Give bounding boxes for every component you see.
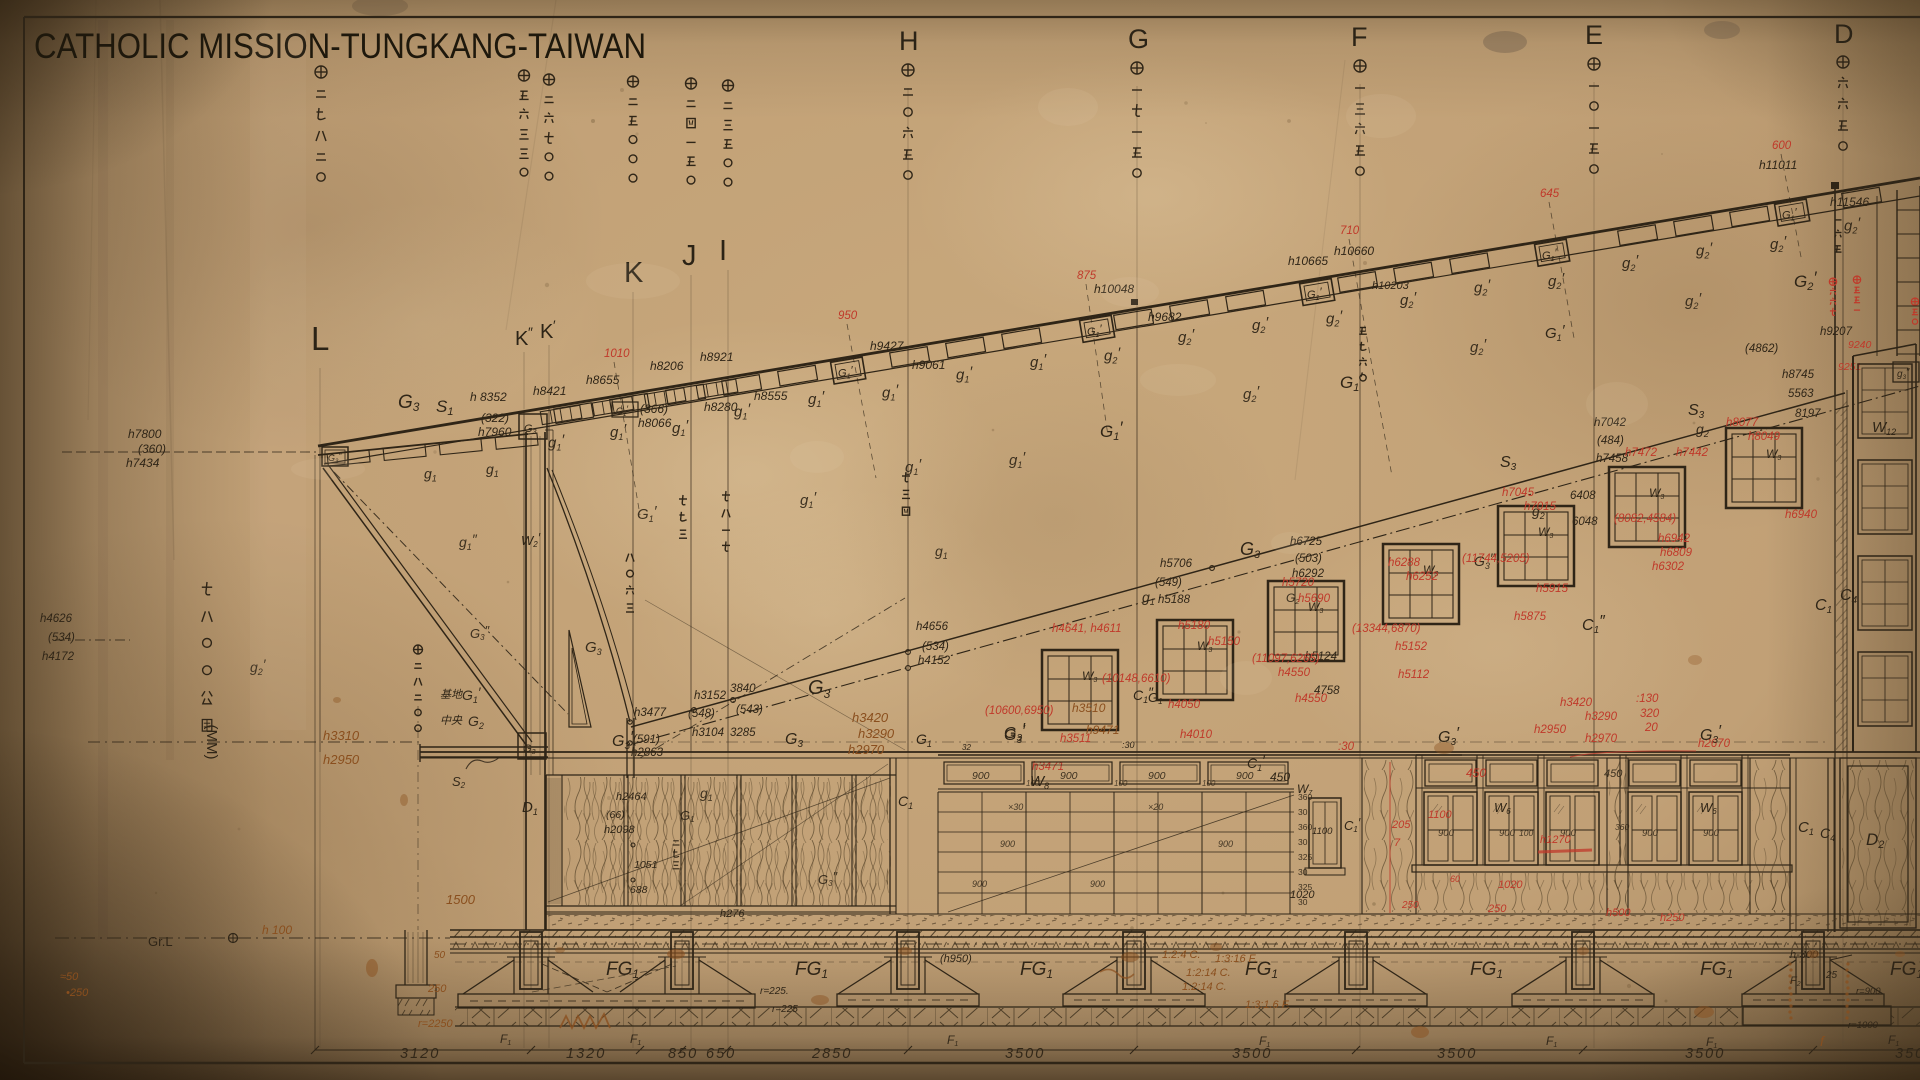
svg-text:(484): (484) <box>1597 435 1624 447</box>
svg-text:900: 900 <box>1499 828 1516 839</box>
svg-text:30: 30 <box>1298 807 1308 817</box>
svg-text:900: 900 <box>1060 770 1078 782</box>
svg-text:h6940: h6940 <box>1785 509 1818 521</box>
svg-text:h8206: h8206 <box>650 359 684 373</box>
svg-text:600: 600 <box>1772 140 1792 152</box>
svg-text:FG1: FG1 <box>1890 959 1920 981</box>
svg-text:h500: h500 <box>1606 907 1631 919</box>
svg-text:g2′: g2′ <box>1685 290 1702 311</box>
svg-text:h4172: h4172 <box>42 651 75 663</box>
svg-text:C4: C4 <box>1820 825 1835 843</box>
svg-text:3840: 3840 <box>730 683 756 695</box>
svg-text:G1′: G1′ <box>1307 286 1322 302</box>
svg-text:h5720: h5720 <box>1282 577 1315 589</box>
svg-text:h11546: h11546 <box>1830 195 1869 209</box>
svg-text:h5915: h5915 <box>1536 583 1569 595</box>
svg-text:G1′: G1′ <box>1545 322 1566 343</box>
svg-text:h4626: h4626 <box>40 613 73 625</box>
svg-text:(591): (591) <box>633 734 660 746</box>
svg-text:h6809: h6809 <box>1660 547 1693 559</box>
svg-text:(503): (503) <box>1295 553 1322 565</box>
svg-text:G1′: G1′ <box>1542 247 1557 263</box>
svg-text:h3477: h3477 <box>634 707 667 719</box>
svg-text:(534): (534) <box>922 641 949 653</box>
svg-text:h2098: h2098 <box>604 824 635 836</box>
svg-text:G1′: G1′ <box>1100 418 1123 443</box>
svg-text:h3290: h3290 <box>1585 711 1618 723</box>
svg-text:1:3:16 F.: 1:3:16 F. <box>1215 953 1257 965</box>
svg-text:h5188: h5188 <box>1158 594 1191 606</box>
svg-text:W6: W6 <box>1700 800 1717 816</box>
svg-text:I: I <box>719 235 727 267</box>
svg-text:g1′: g1′ <box>882 382 899 403</box>
svg-text:g1′: g1′ <box>734 400 751 421</box>
svg-text:g2′: g2′ <box>1696 240 1713 261</box>
svg-text:S3: S3 <box>1500 454 1517 473</box>
svg-text:G1′: G1′ <box>637 503 658 524</box>
svg-text:″: ″ <box>528 324 533 340</box>
svg-text:G1′: G1′ <box>1087 323 1102 339</box>
svg-text:h9207: h9207 <box>1820 326 1853 338</box>
svg-text:g1″: g1″ <box>459 531 478 552</box>
svg-text:h1270: h1270 <box>1540 834 1571 846</box>
svg-text:360: 360 <box>1615 822 1629 832</box>
svg-text:450: 450 <box>1270 770 1290 784</box>
svg-text:325: 325 <box>1298 852 1312 862</box>
svg-text:(4862): (4862) <box>1745 343 1778 355</box>
svg-text:C1′: C1′ <box>1344 815 1361 834</box>
svg-text:3500: 3500 <box>1685 1046 1725 1062</box>
svg-text:(66): (66) <box>606 809 625 821</box>
svg-text:C1: C1 <box>898 793 913 811</box>
svg-text:h9682: h9682 <box>1148 310 1182 324</box>
svg-text:645: 645 <box>1540 188 1560 200</box>
svg-text:h2950: h2950 <box>323 752 360 767</box>
svg-text:6408: 6408 <box>1570 490 1596 502</box>
svg-text:h3104: h3104 <box>692 727 724 739</box>
svg-text:Gr.L: Gr.L <box>148 934 173 949</box>
svg-text:1010: 1010 <box>604 348 630 360</box>
svg-text:FG1: FG1 <box>1470 959 1503 981</box>
svg-text:650: 650 <box>706 1046 736 1062</box>
svg-text:h7960: h7960 <box>478 425 512 439</box>
svg-text:1100: 1100 <box>1428 809 1453 821</box>
svg-text:7: 7 <box>1394 837 1401 849</box>
svg-text:h6942: h6942 <box>1658 533 1691 545</box>
svg-text:g2′: g2′ <box>1844 215 1861 236</box>
svg-text:F1: F1 <box>1546 1034 1557 1049</box>
svg-text:r=1000: r=1000 <box>1848 1020 1879 1031</box>
svg-text:C1: C1 <box>1798 819 1814 837</box>
svg-text:(322): (322) <box>481 411 509 425</box>
svg-text:h3152: h3152 <box>694 690 727 702</box>
svg-text:h8555: h8555 <box>754 389 788 403</box>
svg-text:h7442: h7442 <box>1676 447 1709 459</box>
svg-text:g2′: g2′ <box>1326 307 1343 328</box>
svg-text:h7434: h7434 <box>126 456 160 470</box>
svg-text:h2970: h2970 <box>1585 733 1618 745</box>
svg-text:1:2:14 C.: 1:2:14 C. <box>1186 967 1231 979</box>
svg-text:(8082,4584): (8082,4584) <box>1614 513 1676 525</box>
svg-text:FG1: FG1 <box>795 959 828 981</box>
svg-text:L: L <box>311 320 329 357</box>
svg-text:h11011: h11011 <box>1759 158 1797 172</box>
svg-text:360: 360 <box>1298 822 1312 832</box>
svg-text:h7800: h7800 <box>128 427 162 441</box>
svg-text:G1′: G1′ <box>462 684 482 705</box>
svg-text:(10600,6950): (10600,6950) <box>985 705 1054 717</box>
svg-text:875: 875 <box>1077 270 1097 282</box>
svg-text:900: 900 <box>1090 879 1105 889</box>
svg-text:h7472: h7472 <box>1625 447 1658 459</box>
svg-text:688: 688 <box>630 884 648 896</box>
svg-text:(11744,5205): (11744,5205) <box>1462 553 1530 565</box>
svg-text:K: K <box>540 321 554 343</box>
svg-text:F1: F1 <box>947 1033 958 1048</box>
svg-text:h2863: h2863 <box>631 747 664 759</box>
svg-text:h5112: h5112 <box>1398 669 1430 681</box>
svg-text:3500: 3500 <box>1005 1046 1045 1062</box>
svg-text:h9061: h9061 <box>912 358 945 372</box>
svg-text:g1′: g1′ <box>1030 351 1047 372</box>
svg-text:250: 250 <box>1401 900 1419 911</box>
svg-text:h7458: h7458 <box>1596 453 1629 465</box>
svg-text:G1: G1 <box>1148 690 1163 706</box>
svg-text:F2: F2 <box>1790 975 1801 988</box>
svg-text:205: 205 <box>1391 819 1411 831</box>
svg-text:•250: •250 <box>66 987 89 999</box>
svg-text::130: :130 <box>1636 693 1659 705</box>
svg-text:g2′: g2′ <box>1622 252 1639 273</box>
svg-text:C1: C1 <box>1815 597 1832 616</box>
svg-text:h2464: h2464 <box>616 791 647 803</box>
svg-text:250: 250 <box>427 983 447 995</box>
svg-text:h5706: h5706 <box>1160 558 1193 570</box>
svg-text:h2970: h2970 <box>848 742 885 757</box>
svg-text:32: 32 <box>962 743 971 752</box>
svg-text:FG1: FG1 <box>606 959 639 981</box>
svg-text:h4050: h4050 <box>1168 699 1201 711</box>
svg-text:J: J <box>682 240 697 272</box>
svg-text:250: 250 <box>1487 903 1507 915</box>
svg-text:g2′: g2′ <box>1470 336 1487 357</box>
svg-text:h6252: h6252 <box>1406 571 1439 583</box>
svg-text:G3: G3 <box>585 639 602 657</box>
svg-text:1500: 1500 <box>446 892 476 907</box>
svg-text:F1: F1 <box>500 1032 511 1047</box>
svg-text:(h950): (h950) <box>940 953 972 965</box>
svg-text:20: 20 <box>1644 722 1658 734</box>
svg-text:g1′: g1′ <box>672 417 689 438</box>
svg-text:基地: 基地 <box>440 688 463 701</box>
svg-text:1:3:1.6 F.: 1:3:1.6 F. <box>1245 999 1290 1011</box>
svg-text:8197: 8197 <box>1795 408 1821 420</box>
svg-text:g2′: g2′ <box>1400 289 1417 310</box>
svg-text:g1′: g1′ <box>956 363 973 384</box>
svg-text:G3″: G3″ <box>470 623 490 642</box>
svg-text:h3420: h3420 <box>852 710 889 725</box>
svg-text:G3: G3 <box>523 743 536 756</box>
svg-text:h8066: h8066 <box>638 416 672 430</box>
svg-text:h8921: h8921 <box>700 350 733 364</box>
svg-text:h9471: h9471 <box>1086 723 1119 737</box>
svg-text:450: 450 <box>1604 768 1623 780</box>
svg-text:5563: 5563 <box>1788 388 1814 400</box>
svg-text:W3: W3 <box>1649 486 1664 501</box>
svg-text:G3: G3 <box>785 731 803 750</box>
svg-text:W12: W12 <box>1872 419 1896 437</box>
svg-text:E: E <box>1585 20 1603 50</box>
svg-text:r=225: r=225 <box>772 1004 798 1015</box>
svg-text:h9427: h9427 <box>870 339 905 353</box>
svg-text:W3: W3 <box>1082 669 1097 684</box>
svg-text:W8: W8 <box>1030 773 1049 791</box>
svg-text:h4152: h4152 <box>918 655 951 667</box>
svg-text:G3: G3 <box>398 392 420 414</box>
svg-text:h5152: h5152 <box>1395 641 1428 653</box>
svg-text:g1: g1 <box>424 465 437 483</box>
svg-text:h5180: h5180 <box>1178 620 1211 632</box>
svg-text:950: 950 <box>838 310 858 322</box>
svg-text:g2′: g2′ <box>1178 326 1195 347</box>
svg-text:h4550: h4550 <box>1278 667 1311 679</box>
svg-text:h8049: h8049 <box>1748 431 1781 443</box>
svg-text:D1: D1 <box>522 799 538 817</box>
svg-text:(549): (549) <box>1155 577 1182 589</box>
svg-text:h3510: h3510 <box>1072 701 1106 715</box>
svg-text:CATHOLIC MISSION-TUNGKANG-TAIW: CATHOLIC MISSION-TUNGKANG-TAIWAN <box>34 27 646 66</box>
svg-text:1:2:14 C.: 1:2:14 C. <box>1182 981 1227 993</box>
svg-text:h250: h250 <box>1660 912 1685 924</box>
svg-text:900: 900 <box>1642 828 1659 839</box>
svg-text:K: K <box>515 328 529 350</box>
svg-text:900: 900 <box>972 770 990 782</box>
svg-text:S2: S2 <box>452 774 466 790</box>
svg-text:2850: 2850 <box>811 1046 852 1062</box>
svg-text:F: F <box>1351 22 1368 52</box>
svg-text:60: 60 <box>1450 874 1460 884</box>
svg-text:D: D <box>1834 19 1854 49</box>
svg-text::30: :30 <box>1122 740 1135 750</box>
svg-text:h4010: h4010 <box>1180 729 1213 741</box>
svg-text:1320: 1320 <box>566 1046 606 1062</box>
svg-text:h7015: h7015 <box>1524 501 1557 513</box>
svg-text:3500: 3500 <box>1437 1046 1477 1062</box>
svg-text:h8077: h8077 <box>1726 417 1759 429</box>
svg-text:3500: 3500 <box>1232 1046 1272 1062</box>
svg-text:25: 25 <box>1825 970 1838 981</box>
svg-text:900: 900 <box>1148 770 1166 782</box>
svg-text:h4656: h4656 <box>916 621 949 633</box>
svg-text:900: 900 <box>1236 770 1254 782</box>
svg-text:r=900: r=900 <box>1856 986 1881 997</box>
svg-text:H: H <box>899 26 919 56</box>
svg-text:h8745: h8745 <box>1782 369 1815 381</box>
svg-text:g2′: g2′ <box>1770 233 1787 254</box>
svg-text:(10148,6610): (10148,6610) <box>1102 673 1171 685</box>
svg-text:h8655: h8655 <box>586 373 620 387</box>
svg-text:G1′: G1′ <box>1782 207 1797 223</box>
svg-text:h 100: h 100 <box>262 923 292 937</box>
svg-text:G3: G3 <box>808 677 831 701</box>
svg-text:S3: S3 <box>1688 402 1705 421</box>
svg-text:g2: g2 <box>1696 421 1709 439</box>
svg-text:h4641, h4611: h4641, h4611 <box>1052 623 1122 635</box>
svg-text:(13344,6870): (13344,6870) <box>1352 623 1421 635</box>
svg-text:G3′: G3′ <box>1004 721 1026 744</box>
svg-text:h3290: h3290 <box>858 726 895 741</box>
svg-text:h7045: h7045 <box>1502 487 1535 499</box>
svg-text:900: 900 <box>1000 839 1015 849</box>
svg-text:(11097,6265): (11097,6265) <box>1252 653 1320 665</box>
svg-text:g2′: g2′ <box>1104 345 1121 366</box>
svg-text:G2′: G2′ <box>1794 268 1817 293</box>
svg-text:3285: 3285 <box>730 727 756 739</box>
svg-text::30: :30 <box>1338 741 1355 753</box>
svg-text:′: ′ <box>553 317 556 333</box>
svg-text:850: 850 <box>668 1046 698 1062</box>
svg-text:g1′: g1′ <box>610 421 627 442</box>
svg-text:g1′: g1′ <box>800 489 817 510</box>
svg-text:r=2250: r=2250 <box>418 1018 453 1030</box>
svg-text:900: 900 <box>1703 828 1720 839</box>
svg-text:g1: g1 <box>935 543 948 561</box>
svg-text:(360): (360) <box>138 442 166 456</box>
svg-text:g1′: g1′ <box>1009 449 1026 470</box>
svg-text:W7: W7 <box>1297 782 1313 797</box>
svg-text:h5690: h5690 <box>1298 593 1331 605</box>
svg-text:900: 900 <box>1438 828 1455 839</box>
svg-text:W3: W3 <box>1766 447 1781 462</box>
svg-text:(543): (543) <box>736 704 763 716</box>
svg-text:h10203: h10203 <box>1372 280 1410 292</box>
svg-text:G2: G2 <box>468 713 484 731</box>
svg-text:9240: 9240 <box>1848 339 1872 351</box>
svg-text:h6302: h6302 <box>1652 561 1685 573</box>
svg-text:S1: S1 <box>436 397 453 418</box>
svg-text:G1′: G1′ <box>838 365 853 381</box>
svg-text:h8421: h8421 <box>533 384 566 398</box>
svg-text:G1: G1 <box>916 731 932 749</box>
svg-text:中央: 中央 <box>440 714 463 727</box>
svg-text:g2′: g2′ <box>1243 383 1260 404</box>
svg-text:g2′: g2′ <box>1252 314 1269 335</box>
svg-text:(366): (366) <box>640 402 668 416</box>
svg-text:g1′: g1′ <box>808 388 825 409</box>
svg-text:×20: ×20 <box>1148 802 1163 812</box>
svg-text:320: 320 <box>1640 708 1660 720</box>
svg-text:g1′: g1′ <box>905 456 922 477</box>
svg-text:h3310: h3310 <box>323 728 360 743</box>
svg-text:h5875: h5875 <box>1514 611 1547 623</box>
svg-text:h4550: h4550 <box>1295 693 1328 705</box>
svg-text:900: 900 <box>972 879 987 889</box>
svg-text:G: G <box>1128 24 1149 54</box>
svg-text:G3: G3 <box>1240 539 1261 561</box>
svg-text:×30: ×30 <box>1008 802 1023 812</box>
svg-text:450: 450 <box>1466 766 1486 780</box>
svg-text:g1′: g1′ <box>548 432 565 453</box>
svg-text:3120: 3120 <box>400 1046 440 1062</box>
svg-text:1020: 1020 <box>1498 879 1523 891</box>
svg-text:(548): (548) <box>688 708 715 720</box>
svg-text:h5150: h5150 <box>1208 636 1241 648</box>
svg-text:h2950: h2950 <box>1534 724 1567 736</box>
svg-text:1100: 1100 <box>1312 826 1333 837</box>
svg-text:g2′: g2′ <box>1548 270 1565 291</box>
svg-text:r=225.: r=225. <box>760 986 789 997</box>
svg-text:30: 30 <box>1298 837 1308 847</box>
svg-text:1020: 1020 <box>1290 889 1315 901</box>
svg-text:h8280: h8280 <box>704 400 738 414</box>
svg-text:W2′: W2′ <box>521 530 541 549</box>
svg-text:1051: 1051 <box>634 859 657 871</box>
svg-text:900: 900 <box>1218 839 1233 849</box>
svg-text:100: 100 <box>1519 828 1533 838</box>
svg-text:W3: W3 <box>1538 525 1553 540</box>
svg-text:C4: C4 <box>1840 587 1858 606</box>
svg-text:g1: g1 <box>1142 589 1155 607</box>
svg-text:h3420: h3420 <box>1560 697 1593 709</box>
svg-text:350: 350 <box>1895 1046 1920 1062</box>
svg-text:1:2:4 C.: 1:2:4 C. <box>1162 949 1201 961</box>
svg-text:≈50: ≈50 <box>60 971 79 983</box>
svg-text:710: 710 <box>1340 225 1360 237</box>
svg-text:f: f <box>1820 1033 1826 1049</box>
svg-text:h6288: h6288 <box>1388 557 1421 569</box>
svg-text:h 8352: h 8352 <box>470 390 507 404</box>
svg-text:h10665: h10665 <box>1288 254 1328 268</box>
svg-text:(534): (534) <box>48 632 75 644</box>
svg-text:g1: g1 <box>486 461 499 479</box>
svg-text:h10660: h10660 <box>1334 244 1374 258</box>
svg-text:F1: F1 <box>630 1032 641 1047</box>
svg-text:g2′: g2′ <box>1474 277 1491 298</box>
svg-text:50: 50 <box>434 950 446 961</box>
